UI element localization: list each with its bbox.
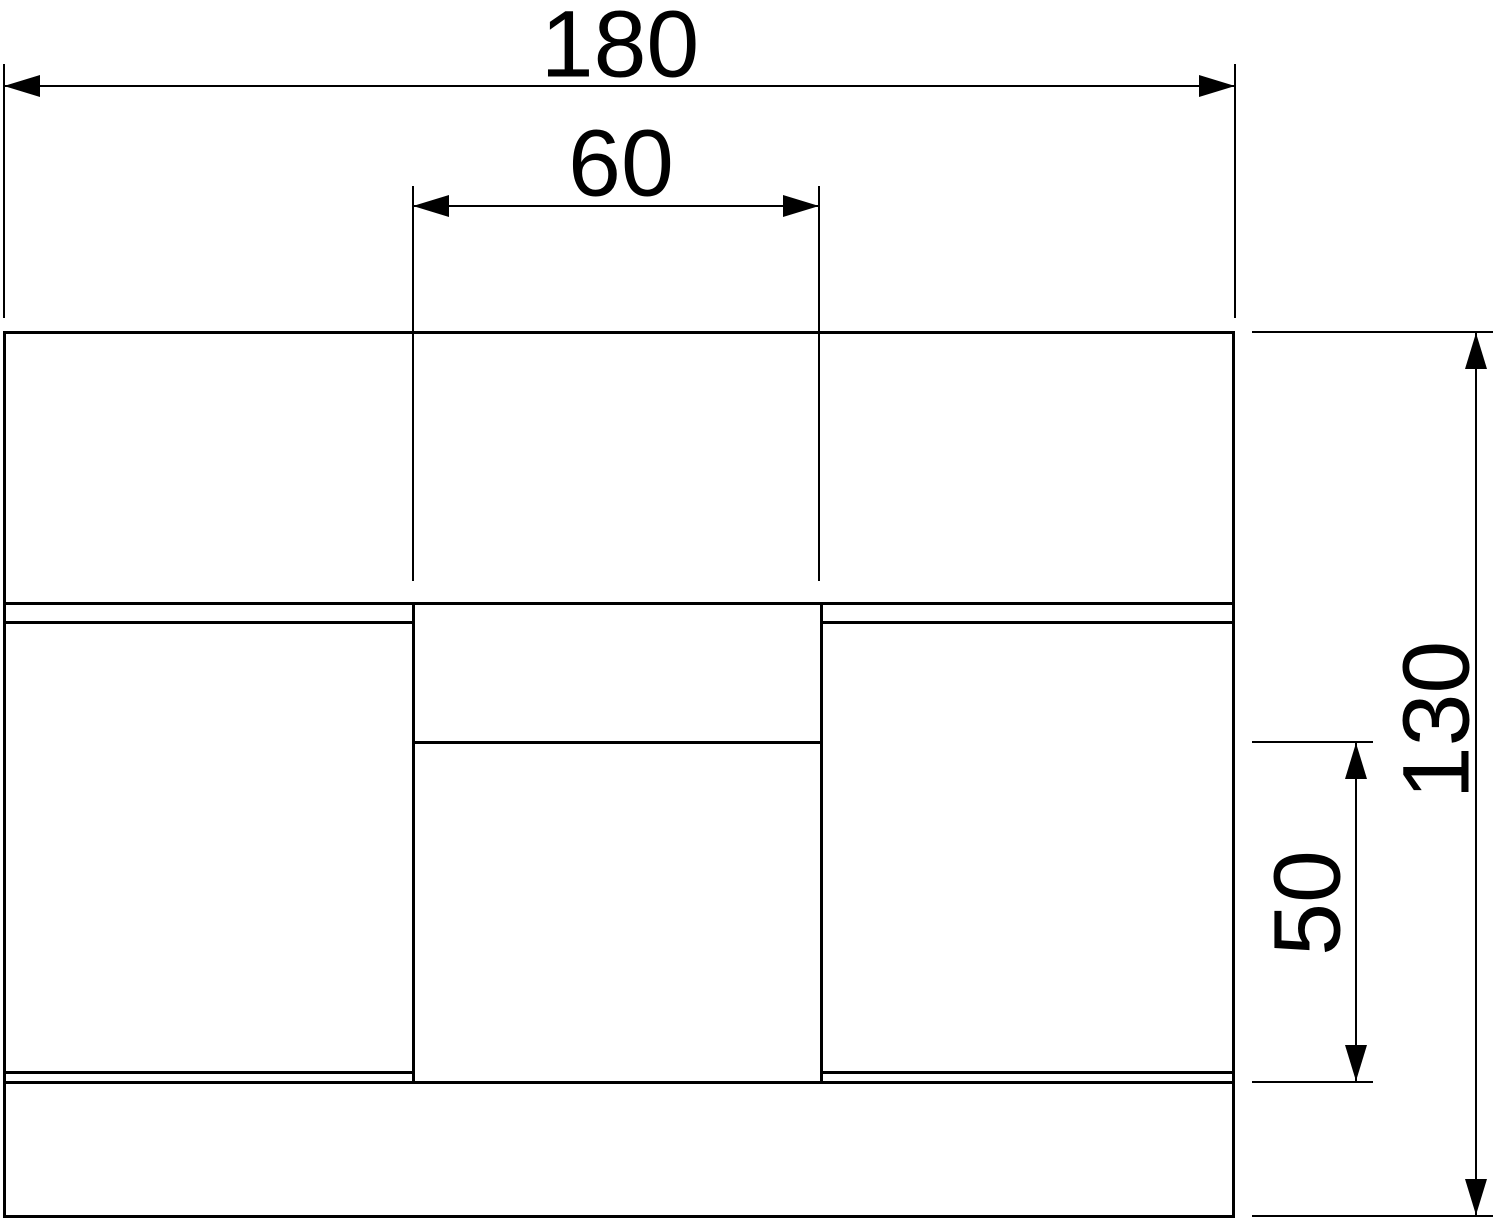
dim-60-label: 60 — [568, 117, 674, 212]
upper-seam-left-line — [3, 621, 414, 624]
dim-180-extension-left — [3, 64, 5, 318]
body-bottom-edge — [3, 1215, 1235, 1218]
dim-50-arrowhead-top — [1345, 743, 1367, 779]
dim-60-arrowhead-left — [413, 195, 449, 217]
dim-130-extension-bottom — [1252, 1215, 1493, 1217]
dim-180-arrowhead-right — [1199, 75, 1235, 97]
dim-130-arrowhead-bottom — [1465, 1179, 1487, 1215]
body-right-edge — [1232, 331, 1235, 1218]
dim-50-label: 50 — [1261, 850, 1356, 956]
upper-seam-right-line — [820, 621, 1235, 624]
dim-50-extension-bottom — [1252, 1081, 1373, 1083]
dim-130-extension-top — [1252, 331, 1493, 333]
lower-seam-left-line — [3, 1071, 414, 1074]
dim-180-arrowhead-left — [4, 75, 40, 97]
dim-60-extension-left — [412, 186, 414, 581]
dim-60-extension-right — [818, 186, 820, 581]
dim-130-arrowhead-top — [1465, 333, 1487, 369]
notch-left-edge — [412, 602, 415, 1084]
dim-130-label: 130 — [1390, 641, 1485, 800]
notch-right-edge — [820, 602, 823, 1084]
dim-180-extension-right — [1234, 64, 1236, 318]
drawing-canvas: 180 60 130 50 — [0, 0, 1500, 1222]
notch-bottom-line — [412, 741, 823, 744]
upper-seam-line — [3, 602, 1235, 605]
dim-180-label: 180 — [541, 0, 700, 93]
lower-seam-right-line — [820, 1071, 1235, 1074]
body-left-edge — [3, 331, 6, 1218]
body-top-edge — [3, 331, 1235, 334]
dim-60-arrowhead-right — [783, 195, 819, 217]
lower-seam-line — [3, 1081, 1235, 1084]
dim-50-arrowhead-bottom — [1345, 1045, 1367, 1081]
